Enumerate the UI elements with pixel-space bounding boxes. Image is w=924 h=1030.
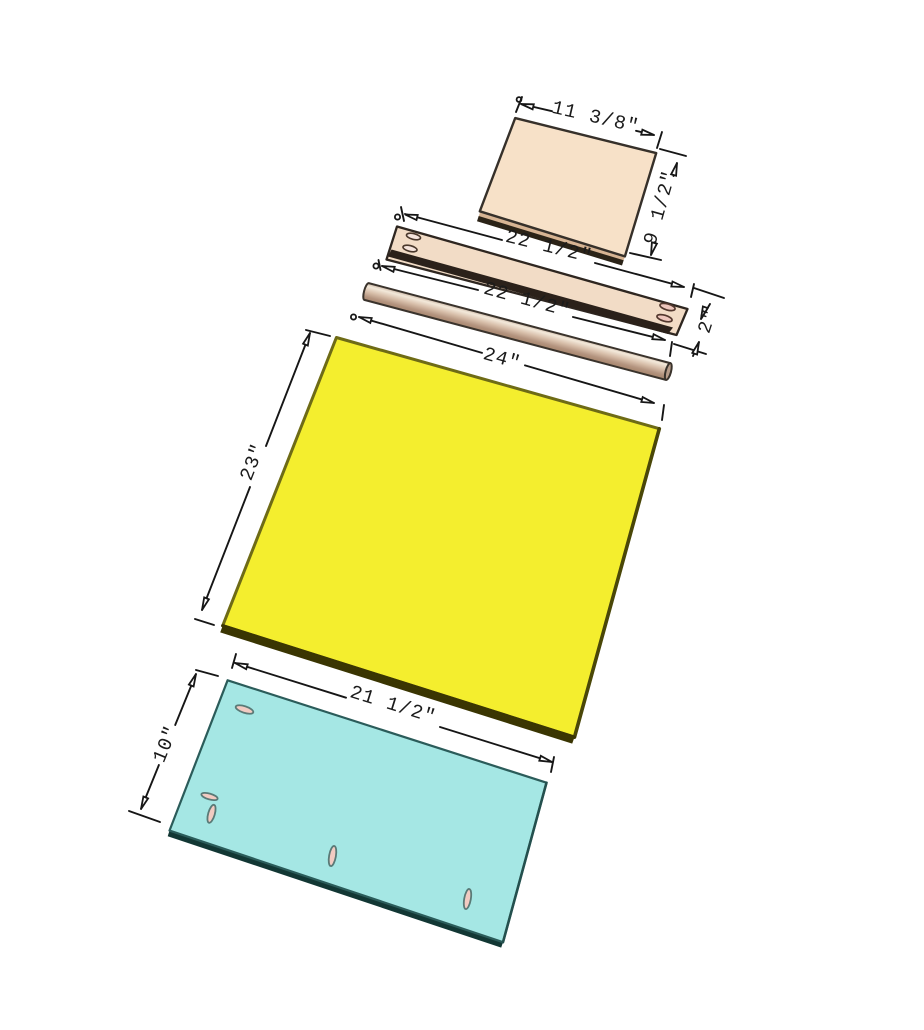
svg-text:24": 24" xyxy=(481,343,524,375)
svg-text:23": 23" xyxy=(236,440,270,483)
svg-text:2": 2" xyxy=(694,306,723,336)
svg-text:10": 10" xyxy=(149,722,184,766)
